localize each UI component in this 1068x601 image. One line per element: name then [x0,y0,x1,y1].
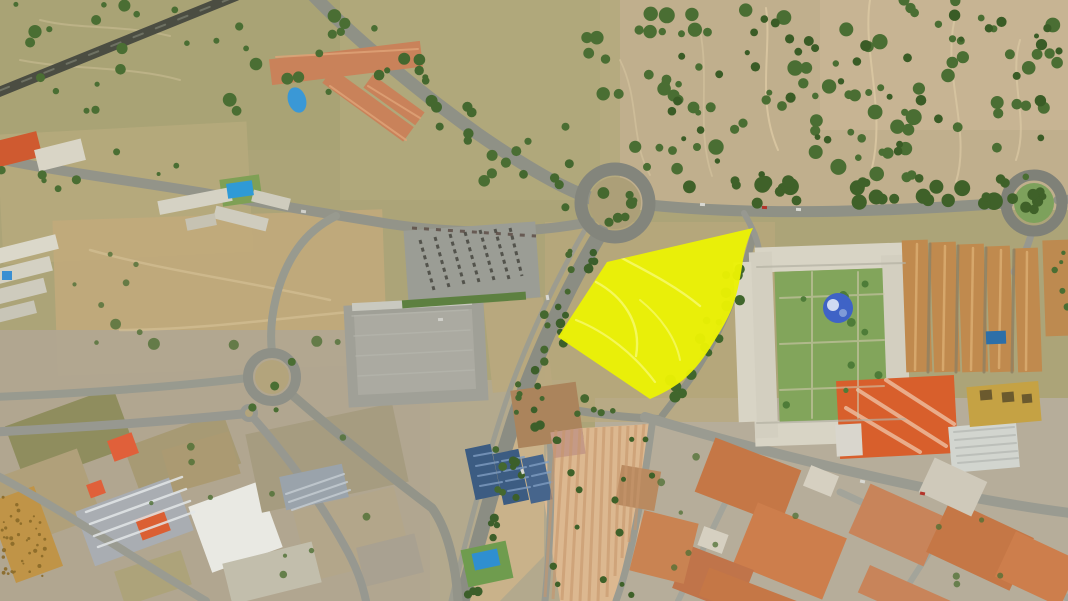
car [438,318,443,321]
car [762,206,767,209]
satellite-map-canvas [0,0,1068,601]
satellite-map [0,0,1068,601]
ochre-building [966,381,1041,427]
swimming-pool [2,271,12,280]
swimming-pool [986,331,1006,345]
car [796,208,801,211]
car [700,203,705,206]
